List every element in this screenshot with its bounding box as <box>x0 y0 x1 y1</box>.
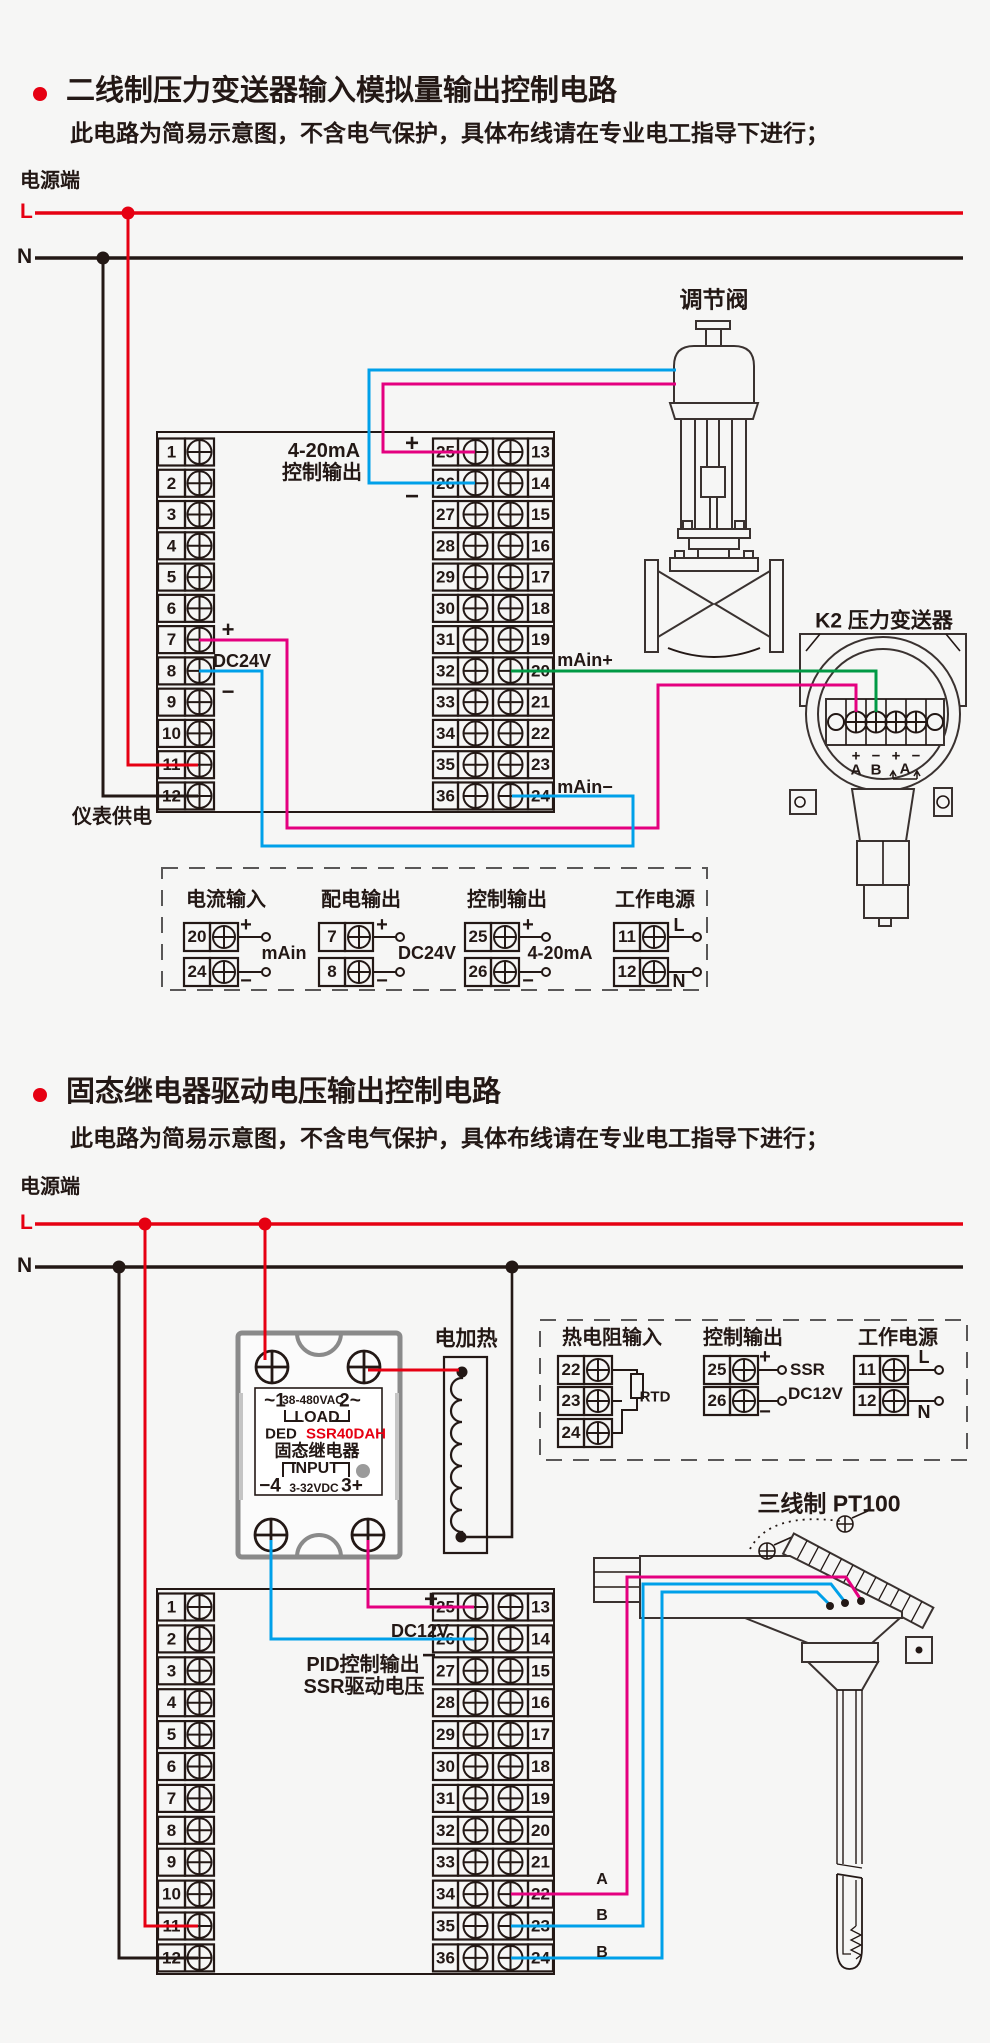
legend2-terminal: 12 <box>854 1387 880 1415</box>
output-label-420ma: 4-20mA <box>288 441 360 461</box>
svg-text:2: 2 <box>167 1629 176 1648</box>
rtd-wiring <box>612 1370 637 1433</box>
svg-text:28: 28 <box>436 536 455 555</box>
svg-text:31: 31 <box>436 630 455 649</box>
legend1-g4-sign1: L <box>674 916 685 934</box>
legend1-terminal: 12 <box>614 958 640 986</box>
legend1-g3-sign2: − <box>522 971 534 991</box>
legend1-g1-title: 电流输入 <box>186 890 266 910</box>
legend1-g1-name: mAin <box>262 944 307 962</box>
svg-text:6: 6 <box>167 599 176 618</box>
svg-text:20: 20 <box>531 1821 550 1840</box>
legend1-terminal: 25 <box>465 923 491 951</box>
svg-text:34: 34 <box>436 724 455 743</box>
svg-text:10: 10 <box>162 1885 181 1904</box>
valve-label: 调节阀 <box>680 289 749 312</box>
svg-text:5: 5 <box>167 568 176 587</box>
svg-text:13: 13 <box>531 1598 550 1617</box>
plus-sign-25b: + <box>424 1588 438 1612</box>
svg-text:21: 21 <box>531 693 550 712</box>
svg-text:29: 29 <box>436 1725 455 1744</box>
legend2-terminal: 22 <box>558 1356 584 1384</box>
line-n-label-1: N <box>17 246 32 267</box>
heater-label: 电加热 <box>435 1329 498 1350</box>
rtd-wire-b1-label: B <box>596 1908 608 1924</box>
legend1-terminal: 8 <box>319 958 345 986</box>
instrument-outline-2 <box>157 1589 554 1974</box>
svg-text:6: 6 <box>167 1757 176 1776</box>
pid-label-1: PID控制输出 <box>306 1655 419 1675</box>
legend2-g2-sign1: + <box>759 1347 771 1367</box>
svg-text:29: 29 <box>436 568 455 587</box>
wire-rtd-b2 <box>511 1592 830 1958</box>
dc12v-label: DC12V <box>391 1622 449 1640</box>
legend1-g2-name: DC24V <box>398 944 456 962</box>
svg-text:27: 27 <box>436 505 455 524</box>
wire-main-minus <box>199 671 633 846</box>
ssr-model: SSR40DAH <box>306 1427 386 1442</box>
power-terminal-label-2: 电源端 <box>20 1177 80 1197</box>
svg-text:19: 19 <box>531 630 550 649</box>
rtd-wire-a-label: A <box>596 1872 608 1888</box>
svg-text:32: 32 <box>436 661 455 680</box>
terminal-strip-section1: 1251322614327154281652917630187311983220… <box>158 439 553 810</box>
svg-text:19: 19 <box>531 1789 550 1808</box>
wiring-diagram-page: 1251322614327154281652917630187311983220… <box>0 0 990 2043</box>
transmitter-label: K2 压力变送器 <box>815 611 953 632</box>
pt100-element <box>843 1876 861 1959</box>
legend1-terminal: 26 <box>465 958 491 986</box>
wiring-art: 1251322614327154281652917630187311983220… <box>0 0 990 2043</box>
svg-text:36: 36 <box>436 786 455 805</box>
pressure-transmitter-drawing <box>790 634 966 926</box>
svg-text:14: 14 <box>531 474 550 493</box>
tx-pin-b: B <box>871 763 882 778</box>
svg-text:33: 33 <box>436 1853 455 1872</box>
svg-text:2: 2 <box>167 474 176 493</box>
legend1-terminal: 11 <box>614 923 640 951</box>
pt100-drawing <box>594 1510 933 1969</box>
legend2-g2-title: 控制输出 <box>703 1328 783 1348</box>
svg-text:7: 7 <box>167 1789 176 1808</box>
pt100-cable-gland <box>594 1558 640 1602</box>
svg-text:17: 17 <box>531 1725 550 1744</box>
legend2-dc12v-label: DC12V <box>788 1385 843 1402</box>
svg-text:4: 4 <box>167 1693 177 1712</box>
svg-text:3: 3 <box>167 1661 176 1680</box>
section2-bullet <box>33 1088 47 1102</box>
svg-text:7: 7 <box>167 630 176 649</box>
svg-text:10: 10 <box>162 724 181 743</box>
ssr-load-2: 2~ <box>339 1392 361 1411</box>
svg-text:3: 3 <box>167 505 176 524</box>
pid-label-2: SSR驱动电压 <box>303 1677 424 1697</box>
section2-title: 固态继电器驱动电压输出控制电路 <box>66 1078 501 1107</box>
power-terminal-label-1: 电源端 <box>20 171 80 191</box>
section1-note: 此电路为简易示意图，不含电气保护，具体布线请在专业电工指导下进行； <box>70 122 829 145</box>
svg-text:32: 32 <box>436 1821 455 1840</box>
svg-text:16: 16 <box>531 1693 550 1712</box>
rtd-label: RTD <box>640 1390 671 1405</box>
svg-text:31: 31 <box>436 1789 455 1808</box>
legend1-g1-sign2: − <box>240 971 252 991</box>
legend1-g2-sign1: + <box>376 915 388 935</box>
minus-sign-26: − <box>405 485 419 509</box>
legend2-terminal: 26 <box>704 1387 730 1415</box>
svg-text:16: 16 <box>531 536 550 555</box>
svg-text:4: 4 <box>167 536 177 555</box>
legend1-g2-sign2: − <box>376 971 388 991</box>
section1-title: 二线制压力变送器输入模拟量输出控制电路 <box>66 77 617 106</box>
legend2-g3-sign1: L <box>919 1348 930 1366</box>
ssr-brand: DED <box>265 1427 297 1442</box>
ssr-input-word: INPUT <box>291 1461 339 1477</box>
pt100-probe-tip <box>837 1874 862 1969</box>
legend1-terminal: 7 <box>319 923 345 951</box>
line-l-label-1: L <box>20 201 33 222</box>
legend1-g3-sign1: + <box>522 915 534 935</box>
main-plus-label: mAin+ <box>557 651 613 669</box>
svg-text:35: 35 <box>436 755 455 774</box>
pt100-probe-upper <box>837 1690 862 1864</box>
legend2-g2-sign2: − <box>759 1402 771 1422</box>
svg-text:27: 27 <box>436 1661 455 1680</box>
heater-coil <box>451 1372 462 1537</box>
plus-sign-7: + <box>222 619 235 641</box>
svg-text:34: 34 <box>436 1885 455 1904</box>
legend1-terminal: 24 <box>184 958 210 986</box>
svg-text:35: 35 <box>436 1917 455 1936</box>
ssr-name: 固态继电器 <box>275 1443 360 1460</box>
legend2-g1-title: 热电阻输入 <box>562 1328 662 1348</box>
legend2-terminal: 11 <box>854 1356 880 1384</box>
ssr-vac: 38-480VAC <box>282 1394 344 1406</box>
svg-text:36: 36 <box>436 1948 455 1967</box>
svg-text:22: 22 <box>531 724 550 743</box>
minus-sign-26b: − <box>422 1644 436 1668</box>
wire-valve-plus <box>383 384 676 452</box>
legend2-terminal: 25 <box>704 1356 730 1384</box>
svg-text:1: 1 <box>167 1598 176 1617</box>
svg-text:18: 18 <box>531 1757 550 1776</box>
minus-sign-8: − <box>222 681 235 703</box>
instrument-supply-label: 仪表供电 <box>72 807 152 827</box>
svg-text:9: 9 <box>167 1853 176 1872</box>
legend1-g3-title: 控制输出 <box>467 890 547 910</box>
svg-text:9: 9 <box>167 693 176 712</box>
ssr-load-word: LOAD <box>294 1410 339 1426</box>
legend1-g3-name: 4-20mA <box>527 944 592 962</box>
terminal-strip-section2: 1251322614327154281652917630187311983220… <box>158 1594 553 1972</box>
svg-text:1: 1 <box>167 443 176 462</box>
svg-text:15: 15 <box>531 505 550 524</box>
svg-text:21: 21 <box>531 1853 550 1872</box>
svg-text:33: 33 <box>436 693 455 712</box>
legend1-g1-sign1: + <box>240 915 252 935</box>
svg-text:17: 17 <box>531 568 550 587</box>
rtd-wire-b2-label: B <box>596 1945 608 1961</box>
svg-text:5: 5 <box>167 1725 176 1744</box>
tx-pin-a1: A <box>851 763 862 778</box>
legend2-terminal: 24 <box>558 1419 584 1447</box>
dc24v-label: DC24V <box>213 652 271 670</box>
legend2-ssr-label: SSR <box>790 1361 825 1378</box>
legend1-g4-title: 工作电源 <box>615 890 695 910</box>
main-minus-label: mAin− <box>557 778 613 796</box>
svg-text:30: 30 <box>436 599 455 618</box>
legend2-g3-title: 工作电源 <box>858 1328 938 1348</box>
legend1-g2-title: 配电输出 <box>321 890 401 910</box>
pt100-label: 三线制 PT100 <box>757 1493 900 1516</box>
plus-sign-25: + <box>405 432 419 456</box>
svg-text:23: 23 <box>531 755 550 774</box>
tx-pin-a2: A <box>900 762 911 777</box>
line-l-label-2: L <box>20 1212 33 1233</box>
legend2-g3-sign2: N <box>918 1403 931 1421</box>
svg-text:30: 30 <box>436 1757 455 1776</box>
section1-bullet <box>33 87 47 101</box>
ssr-input-3: 3+ <box>341 1477 363 1496</box>
svg-text:13: 13 <box>531 443 550 462</box>
ssr-input-4: −4 <box>259 1477 281 1496</box>
tx-pol-4: − <box>912 749 921 764</box>
svg-text:18: 18 <box>531 599 550 618</box>
legend1-terminal: 20 <box>184 923 210 951</box>
svg-text:14: 14 <box>531 1629 550 1648</box>
legend1-g4-sign2: N <box>673 972 686 990</box>
heater-drawing <box>444 1357 487 1553</box>
svg-text:15: 15 <box>531 1661 550 1680</box>
output-label-control: 控制输出 <box>282 463 362 483</box>
section2-note: 此电路为简易示意图，不含电气保护，具体布线请在专业电工指导下进行； <box>70 1127 829 1150</box>
ssr-vdc: 3-32VDC <box>289 1482 338 1494</box>
svg-text:8: 8 <box>167 661 176 680</box>
svg-text:28: 28 <box>436 1693 455 1712</box>
line-n-label-2: N <box>17 1255 32 1276</box>
legend2-terminal: 23 <box>558 1387 584 1415</box>
svg-text:8: 8 <box>167 1821 176 1840</box>
